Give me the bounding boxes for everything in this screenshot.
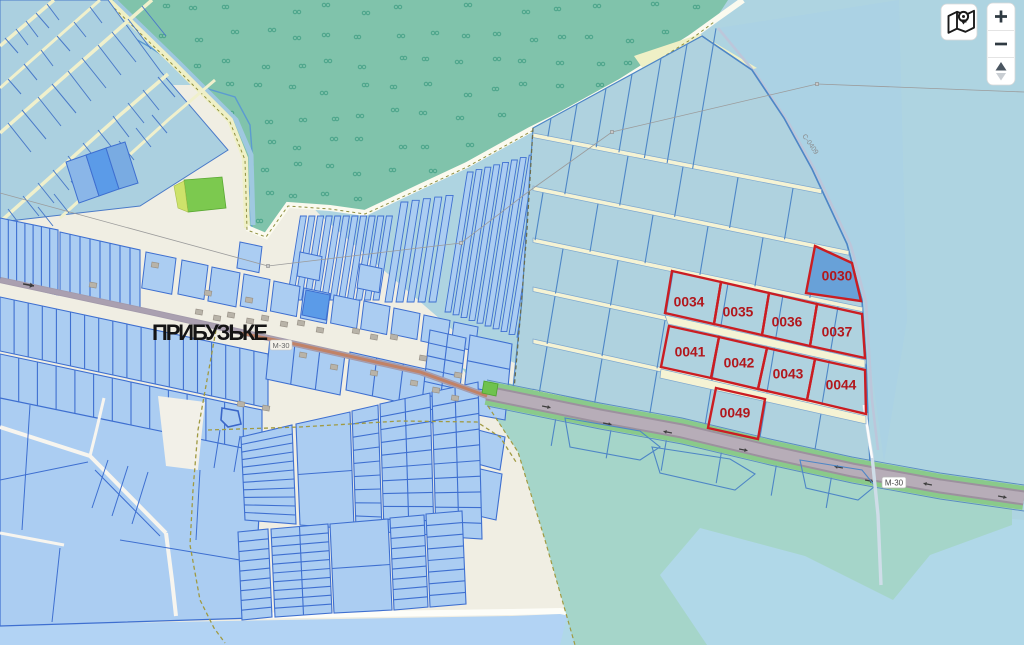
svg-text:0041: 0041 <box>675 345 706 360</box>
svg-text:0044: 0044 <box>826 378 857 393</box>
svg-text:0037: 0037 <box>822 325 853 340</box>
svg-text:М-30: М-30 <box>885 479 904 488</box>
svg-text:0049: 0049 <box>720 406 751 421</box>
svg-text:М-30: М-30 <box>272 341 289 350</box>
svg-text:0035: 0035 <box>723 305 754 320</box>
svg-text:0036: 0036 <box>772 315 803 330</box>
svg-text:0042: 0042 <box>724 356 755 371</box>
svg-text:ПРИБУЗЬКЕ: ПРИБУЗЬКЕ <box>152 320 268 345</box>
svg-text:0030: 0030 <box>822 269 853 284</box>
svg-text:0034: 0034 <box>674 295 705 310</box>
svg-text:0043: 0043 <box>773 367 804 382</box>
